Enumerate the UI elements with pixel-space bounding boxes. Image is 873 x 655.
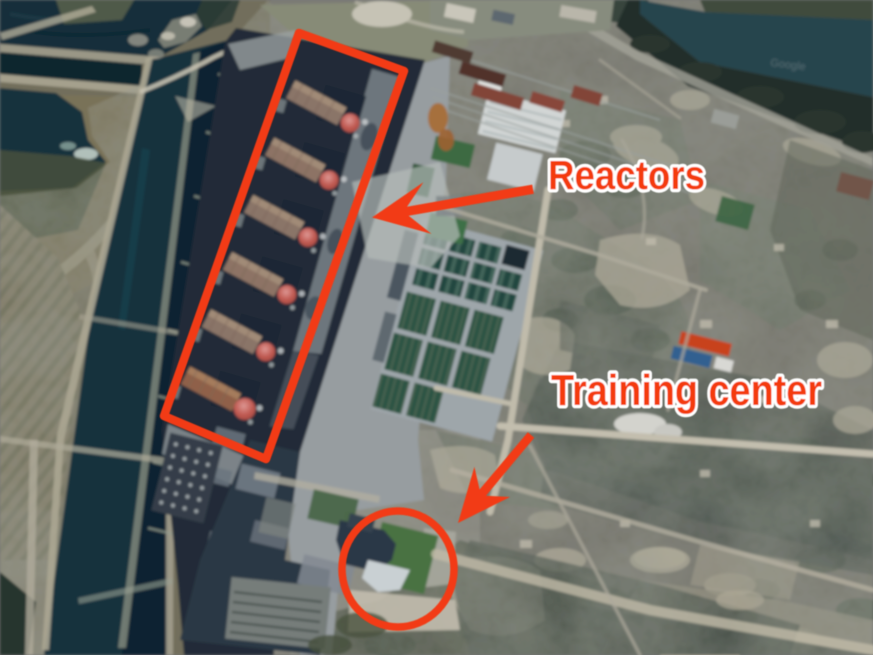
- svg-text:Training center: Training center: [551, 366, 822, 415]
- svg-text:Reactors: Reactors: [548, 152, 705, 198]
